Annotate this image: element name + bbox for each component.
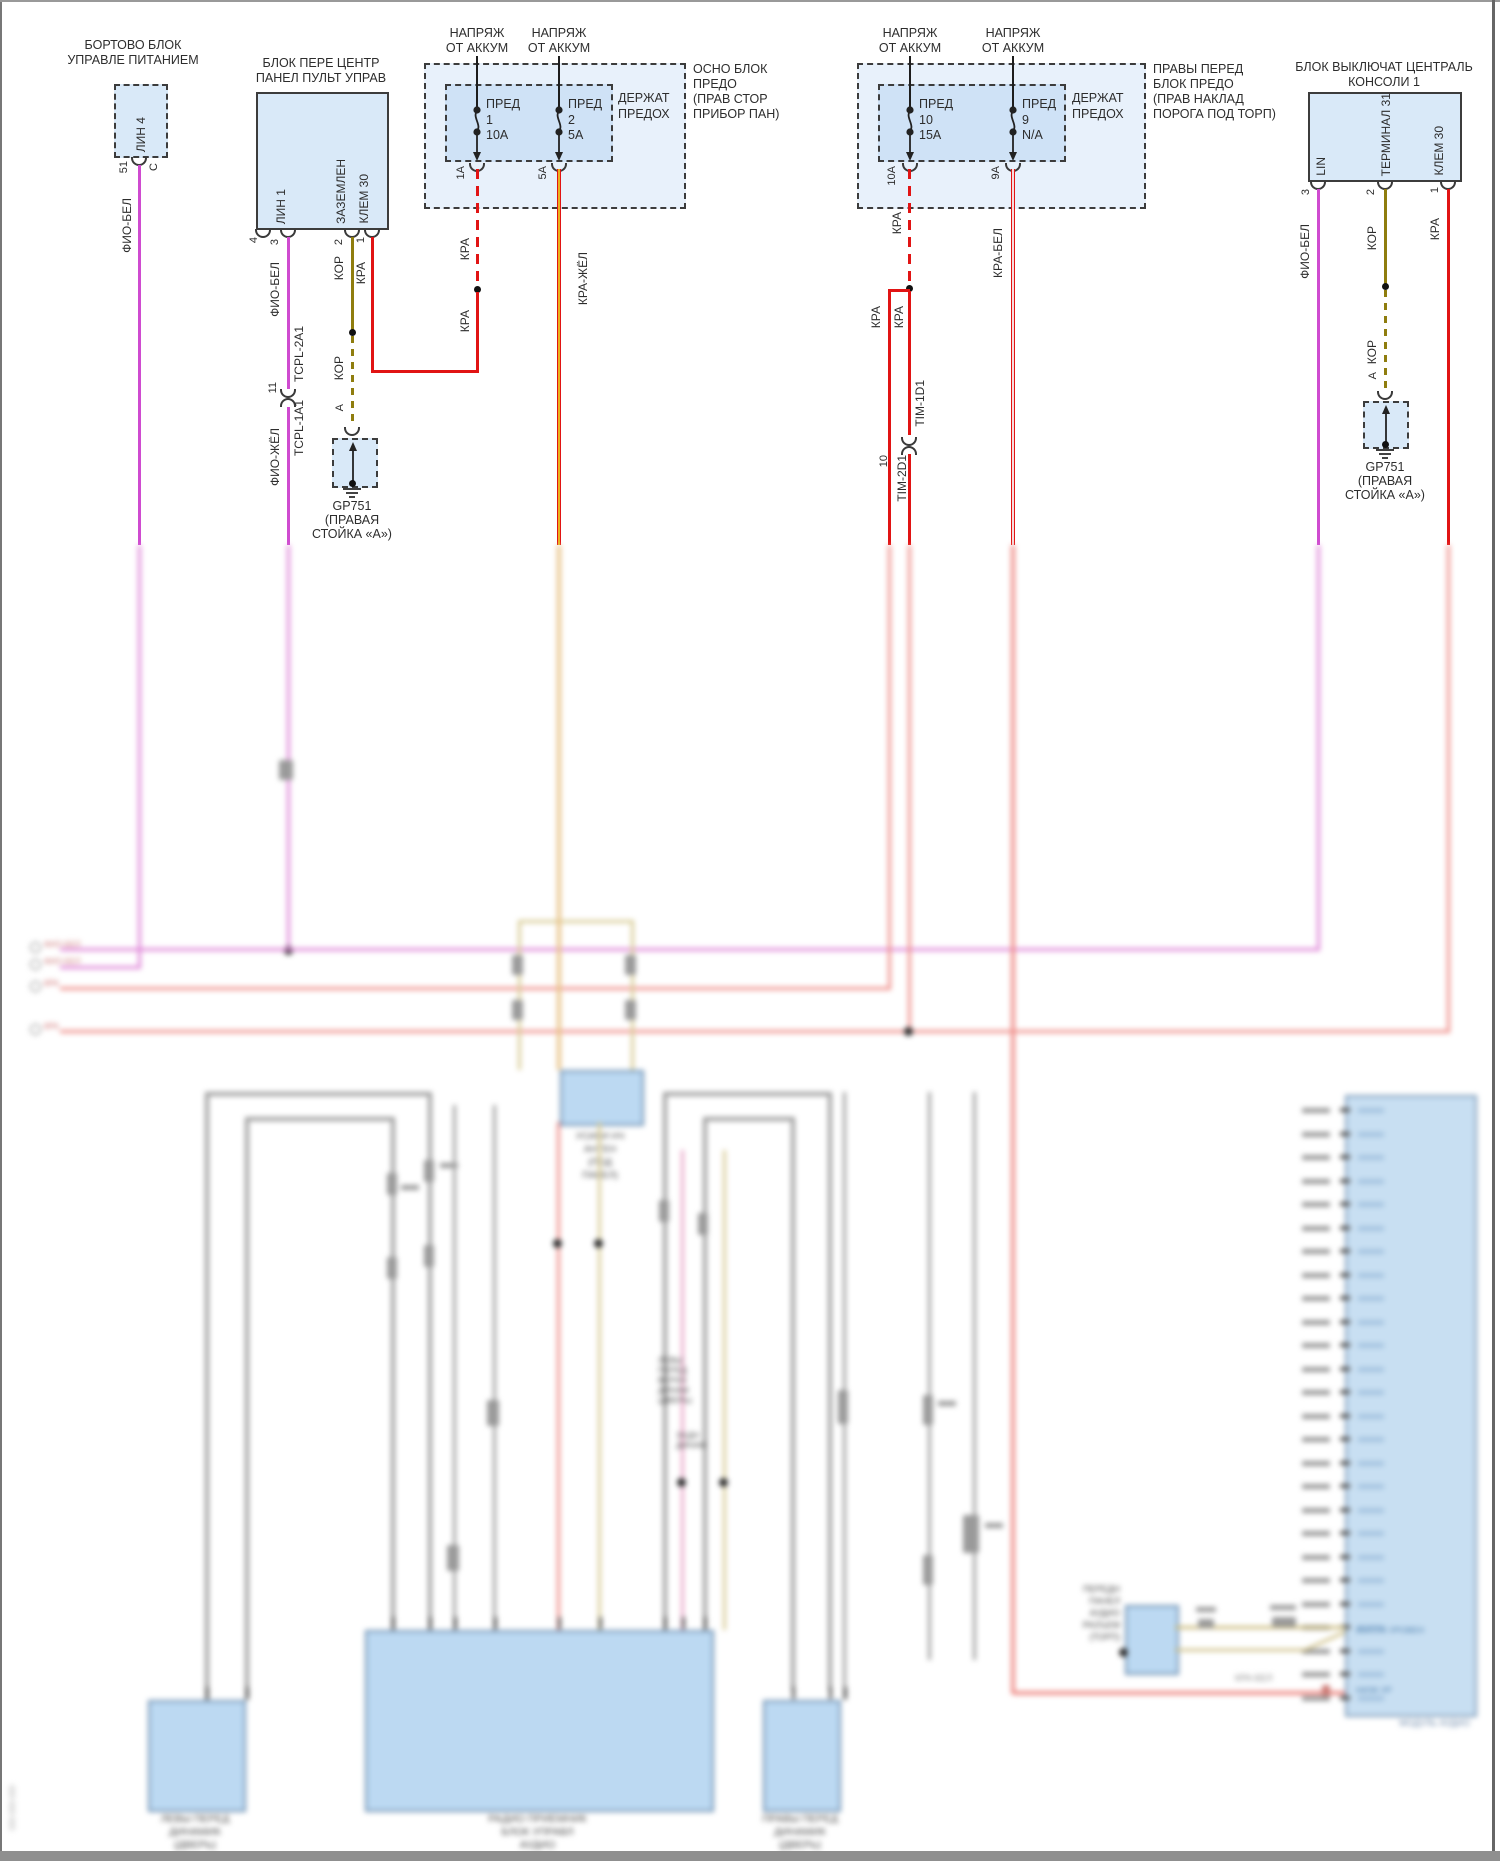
blur-wire-red-left: [888, 545, 891, 990]
speaker-label-2: ЗАДН ДИНАМ: [676, 1430, 707, 1450]
module-pin-tick: [1340, 1437, 1350, 1441]
block3-pin3: 3: [1300, 189, 1312, 195]
loop-left-outer-l: [205, 1092, 209, 1700]
module-pin-tick: [1340, 1508, 1350, 1512]
radio-box-label: РАДИО ПРИЕМНИК БЛОК УПРАВЛ АУДИО: [455, 1813, 620, 1852]
frame-left: [0, 0, 2, 1861]
gray-wire-2: [493, 1105, 496, 1630]
fusebox1-holder-label: ДЕРЖАТ ПРЕДОХ: [618, 90, 670, 122]
offpage-ref-3: [30, 981, 41, 992]
conn-a-letter-right: А: [1367, 372, 1379, 379]
module-pin-ref-bar: [1302, 1555, 1330, 1560]
blur-stub-2: [60, 966, 141, 969]
block2-pin-klem: КЛЕМ 30: [357, 174, 371, 224]
frame-top: [0, 0, 1500, 2]
wire-fio-zhel: [287, 407, 290, 545]
blur-dot-c2: [594, 1239, 603, 1248]
fusebox1-side-label: ОСНО БЛОК ПРЕДО (ПРАВ СТОР ПРИБОР ПАН): [693, 62, 779, 122]
module-pin-inner-bar: [1358, 1132, 1384, 1137]
module-pin-inner-bar: [1358, 1202, 1384, 1207]
module-pin-inner-bar: [1358, 1484, 1384, 1489]
module-pin-ref-bar: [1302, 1437, 1330, 1442]
module-pin-tick: [1340, 1343, 1350, 1347]
blur-inline-connector: [279, 760, 293, 780]
fuse10-out-label: 10A: [886, 166, 898, 186]
wire-kra-1a-solid: [476, 292, 479, 373]
doc-number: 000-000-000: [8, 1785, 17, 1830]
conn-blob-16: [963, 1515, 979, 1553]
wire-kra-horizontal: [371, 370, 479, 373]
gray-wire-5: [973, 1092, 976, 1660]
frame-right: [1492, 0, 1495, 1861]
conn-blob-18: [1272, 1617, 1296, 1627]
block2-pin3: 3: [269, 239, 281, 245]
module-pin-ref-bar: [1302, 1414, 1330, 1419]
module-pin-inner-bar: [1358, 1179, 1384, 1184]
conn-blob-10: [625, 1000, 636, 1020]
module-pin-inner-bar: [1358, 1437, 1384, 1442]
conn-blob-12: [698, 1213, 708, 1235]
blur-wire-cream-r: [723, 1150, 726, 1630]
tiny-label-bar-6: [1270, 1605, 1296, 1610]
module-pin-tick: [1340, 1367, 1350, 1371]
module-pin-ref-bar: [1302, 1367, 1330, 1372]
tiny-label-bar-2: [401, 1185, 419, 1190]
module-pin-ref-bar: [1302, 1602, 1330, 1607]
wire-kra-1a-dashed: [476, 169, 479, 287]
module-pin-ref-bar: [1302, 1296, 1330, 1301]
block1-pin-number: 51: [118, 161, 130, 173]
wire-fio-bel-1: [138, 165, 141, 545]
blur-bus-red-2: [60, 1030, 1450, 1033]
wire-kor-3-solid: [1384, 189, 1387, 285]
wire-fio-bel-2: [287, 237, 290, 389]
module-pin-inner-bar: [1358, 1273, 1384, 1278]
module-pin-tick: [1340, 1320, 1350, 1324]
wire-label-fio-bel-2: ФИО-БЕЛ: [268, 262, 282, 317]
blur-dot-r1: [677, 1478, 686, 1487]
speaker-box-right: [763, 1700, 841, 1812]
module-pin-tick: [1340, 1696, 1350, 1700]
conn-a-arc: [344, 427, 360, 436]
module-pin-ref-bar: [1302, 1132, 1330, 1137]
wire-label-kra-10a: КРА: [890, 212, 904, 234]
stub-label-3: КРА: [44, 979, 59, 988]
module-pin-inner-bar: [1358, 1226, 1384, 1231]
module-pin-tick: [1340, 1390, 1350, 1394]
module-pin-tick: [1340, 1414, 1350, 1418]
fusebox2-feed1: НАПРЯЖ ОТ АККУМ: [860, 26, 960, 56]
wire-kra-branch-h: [888, 289, 910, 292]
wire-kor-dashed: [351, 336, 354, 422]
module-pin-ref-bar: [1302, 1179, 1330, 1184]
speaker-box-left-label: ЛЕВЫ ПЕРЕД ДИНАМИК (ДВЕРЬ): [125, 1813, 265, 1852]
wire-label-kra-solid: КРА: [458, 310, 472, 332]
conn-blob-11: [659, 1200, 669, 1222]
conn-a-letter: А: [334, 404, 346, 411]
module-pin-tick: [1340, 1179, 1350, 1183]
block2-box: ЛИН 1 ЗАЗЕМЛЕН КЛЕМ 30: [256, 92, 389, 230]
block2-pin-gnd: ЗАЗЕМЛЕН: [334, 159, 348, 224]
wire-label-kra-v1: КРА: [354, 262, 368, 284]
block2-pin4: 4: [248, 237, 260, 243]
wire-label-kor: КОР: [332, 256, 346, 280]
small-connector-box: [1125, 1605, 1179, 1675]
module-pin-ref-bar: [1302, 1484, 1330, 1489]
loop-center-top: [518, 920, 634, 923]
conn-blob-2: [424, 1245, 434, 1267]
wire-label-kor-2: КОР: [332, 356, 346, 380]
block3-title: БЛОК ВЫКЛЮЧАТ ЦЕНТРАЛЬ КОНСОЛИ 1: [1264, 60, 1500, 90]
wire-label-fio-bel-1: ФИО-БЕЛ: [120, 198, 134, 253]
block1-title: БОРТОВО БЛОК УПРАВЛЕ ПИТАНИЕМ: [53, 38, 213, 68]
module-pin-tick: [1340, 1202, 1350, 1206]
module-pin-ref-bar: [1302, 1672, 1330, 1677]
junction-dot-kor-3: [1382, 283, 1389, 290]
loop-left-inner-top: [245, 1117, 395, 1121]
fuse2-label: ПРЕД 2 5A: [568, 97, 602, 144]
module-pin-inner-bar: [1358, 1649, 1384, 1654]
module-pin-inner-bar: [1358, 1343, 1384, 1348]
wire-kra-10a-dashed: [908, 169, 911, 286]
conn-blob-7: [512, 955, 523, 975]
wire-label-fio-bel-3: ФИО-БЕЛ: [1298, 224, 1312, 279]
module-pin-inner-bar: [1358, 1390, 1384, 1395]
wire-kra-tim-lower: [908, 454, 911, 545]
tim-2d1-label: TIM-2D1: [895, 455, 909, 502]
module-pin-tick: [1340, 1296, 1350, 1300]
wire-kra-zhel: [557, 169, 561, 545]
block3-pin-klem30: КЛЕМ 30: [1432, 126, 1446, 176]
module-pin-tick: [1340, 1484, 1350, 1488]
ground-dot-right: [1382, 441, 1389, 448]
module-pin-tick: [1340, 1155, 1350, 1159]
conn-blob-1: [424, 1160, 434, 1182]
wire-kra-tim-upper: [908, 291, 911, 435]
speaker-box-right-label: ПРАВЫ ПЕРЕД ДИНАМИК (ДВЕРЬ): [735, 1813, 865, 1852]
loop-right-outer-top: [663, 1092, 832, 1096]
module-pin-inner-bar: [1358, 1367, 1384, 1372]
blur-wire-magenta-3: [1317, 545, 1320, 951]
ground-label-left: GP751 (ПРАВАЯ СТОЙКА «А»): [292, 499, 412, 541]
module-pin-inner-bar: [1358, 1414, 1384, 1419]
junction-dot-kor: [349, 329, 356, 336]
blur-dot-r2: [719, 1478, 728, 1487]
loop-left-outer-top: [205, 1092, 432, 1096]
fuse2-out-label: 5A: [537, 166, 549, 179]
module-pin-inner-bar: [1358, 1531, 1384, 1536]
conn-blob-5: [487, 1400, 499, 1426]
conn-blob-17: [1198, 1619, 1214, 1628]
blur-wire-red-right: [908, 545, 911, 1033]
module-pin-tick: [1340, 1531, 1350, 1535]
offpage-ref-4: [30, 1024, 41, 1035]
module-pin-label-1: ВЫСОК УРОВЕН: [1356, 1625, 1424, 1635]
loop-center-l: [518, 920, 521, 1070]
loop-right-inner-l: [703, 1117, 707, 1630]
block3-pin-lin: LIN: [1314, 157, 1328, 176]
module-pin-ref-bar: [1302, 1508, 1330, 1513]
blur-bus-red-1: [60, 987, 891, 990]
tcpl-connector-upper: [280, 389, 296, 398]
module-pin-ref-bar: [1302, 1461, 1330, 1466]
block1-box: ЛИН 4: [114, 84, 168, 158]
fuse9-symbol: [1005, 104, 1021, 164]
module-pin-tick: [1340, 1132, 1350, 1136]
blur-wire-orange: [557, 545, 561, 1070]
module-pin-inner-bar: [1358, 1155, 1384, 1160]
conn-blob-14: [923, 1395, 933, 1425]
blur-wire-red-far-right: [1447, 545, 1450, 1033]
block2-pin2: 2: [333, 239, 345, 245]
fuse9-label: ПРЕД 9 N/A: [1022, 97, 1056, 144]
fuse1-symbol: [469, 104, 485, 164]
module-pin-inner-bar: [1358, 1249, 1384, 1254]
fuse9-out-label: 9A: [990, 166, 1002, 179]
wire-kra-bel: [1011, 169, 1015, 545]
blur-wire-cream-c: [598, 1122, 601, 1630]
frame-bottom: [0, 1851, 1500, 1861]
conn-blob-3: [387, 1173, 397, 1195]
module-pin-inner-bar: [1358, 1508, 1384, 1513]
module-pin-inner-bar: [1358, 1696, 1384, 1701]
fuse10-symbol: [902, 104, 918, 164]
fuse1-label: ПРЕД 1 10A: [486, 97, 520, 144]
fusebox2-side-label: ПРАВЫ ПЕРЕД БЛОК ПРЕДО (ПРАВ НАКЛАД ПОРО…: [1153, 62, 1276, 122]
module-pin-ref-bar: [1302, 1249, 1330, 1254]
tiny-label-bar-4: [985, 1523, 1003, 1528]
tcpl-2a1-label: TCPL-2A1: [292, 326, 306, 382]
tcpl-pin-11: 11: [267, 382, 279, 393]
module-pin-inner-bar: [1358, 1296, 1384, 1301]
conn-blob-9: [625, 955, 636, 975]
ground-arrow-up-right: [1378, 403, 1394, 445]
tcpl-1a1-label: TCPL-1A1: [292, 400, 306, 456]
fuse2-symbol: [551, 104, 567, 164]
wire-label-fio-zhel: ФИО-ЖЁЛ: [268, 428, 282, 486]
module-pin-tick: [1340, 1555, 1350, 1559]
module-pin-ref-bar: [1302, 1273, 1330, 1278]
module-pin-tick: [1340, 1578, 1350, 1582]
wire-label-kor-3: КОР: [1365, 226, 1379, 250]
conn-blob-6: [447, 1545, 459, 1571]
module-pin-ref-bar: [1302, 1108, 1330, 1113]
wire-label-kra-dash: КРА: [458, 238, 472, 260]
conn-blob-8: [512, 1000, 523, 1020]
blurred-lower-section: ФИО-БЕЛ ФИО-БЕЛ КРА КРА УСИЛИ НЧ А: [0, 545, 1500, 1861]
wire-label-kra-3: КРА: [1428, 218, 1442, 240]
module-pin-inner-bar: [1358, 1555, 1384, 1560]
amp-box: [560, 1070, 644, 1126]
tan-wire-lower: [1175, 1630, 1347, 1656]
fuse10-label: ПРЕД 10 15A: [919, 97, 953, 144]
module-pin-tick: [1340, 1602, 1350, 1606]
block2-pin1: 1: [355, 237, 367, 243]
connector-label: ПЕРЕДН ПАНЕЛ АУДИО РАЗЪЕМ (ТОРП): [1040, 1583, 1120, 1643]
wire-fio-bel-3: [1317, 189, 1320, 545]
loop-right-inner-r: [791, 1117, 795, 1690]
wiring-diagram-page: БОРТОВО БЛОК УПРАВЛЕ ПИТАНИЕМ ЛИН 4 51 C…: [0, 0, 1500, 1861]
block2-title: БЛОК ПЕРЕ ЦЕНТР ПАНЕЛ ПУЛЬТ УПРАВ: [231, 56, 411, 86]
ground-dot-left: [349, 480, 356, 487]
module-pin-tick: [1340, 1672, 1350, 1676]
offpage-ref-2: [30, 959, 41, 970]
module-pin-ref-bar: [1302, 1696, 1330, 1701]
stub-label-2: ФИО-БЕЛ: [44, 957, 81, 966]
conn-blob-4: [387, 1257, 397, 1279]
module-pin-tick: [1340, 1108, 1350, 1112]
blur-wire-salmon-c: [557, 1122, 560, 1630]
fusebox2-holder-label: ДЕРЖАТ ПРЕДОХ: [1072, 90, 1124, 122]
blur-bus-magenta: [60, 948, 1320, 951]
ground-arrow-up: [345, 440, 361, 484]
speaker-label: ЛЕВЫ ПЕРЕД ВЕРХН ДИНАМ (ДВЕРЬ): [658, 1355, 692, 1405]
wire-label-kra-right: КРА: [892, 306, 906, 328]
module-pin-tick: [1340, 1273, 1350, 1277]
module-pin-inner-bar: [1358, 1320, 1384, 1325]
module-pin-ref-bar: [1302, 1578, 1330, 1583]
module-pin-ref-bar: [1302, 1202, 1330, 1207]
module-pin-ref-bar: [1302, 1390, 1330, 1395]
speaker-box-left: [148, 1700, 246, 1812]
module-pin-label-2: НИЗК УР: [1356, 1685, 1392, 1695]
block1-conn-letter: C: [148, 163, 160, 171]
block2-pin-lin: ЛИН 1: [274, 189, 288, 224]
loop-center-r: [631, 920, 634, 1070]
fusebox2-feed2: НАПРЯЖ ОТ АККУМ: [963, 26, 1063, 56]
wire-kor-3-dashed: [1384, 290, 1387, 388]
stub-label-4: КРА: [44, 1022, 59, 1031]
tiny-label-bar-3: [938, 1401, 956, 1406]
block3-pin2: 2: [1365, 189, 1377, 195]
tim-pin-10: 10: [878, 455, 890, 467]
conn-blob-15: [923, 1555, 933, 1585]
blur-wire-kra-bel: [1011, 545, 1015, 1694]
blur-kra-bel-label: КРА-БЕЛ: [1235, 1673, 1272, 1683]
fusebox1-feed2: НАПРЯЖ ОТ АККУМ: [509, 26, 609, 56]
conn-blob-13: [838, 1390, 848, 1424]
module-pin-ref-bar: [1302, 1320, 1330, 1325]
blur-dot-c1: [553, 1239, 562, 1248]
wire-kra-branch-v: [888, 289, 891, 545]
block3-pin-term31: ТЕРМИНАЛ 31: [1379, 93, 1393, 176]
module-pin-inner-bar: [1358, 1578, 1384, 1583]
wire-label-kra-bel: КРА-БЕЛ: [991, 228, 1005, 278]
loop-right-outer-r: [828, 1092, 832, 1690]
blur-wire-magenta-2: [287, 545, 290, 952]
module-pin-inner-bar: [1358, 1672, 1384, 1677]
fuse1-out-label: 1A: [455, 166, 467, 179]
wire-label-kra-left: КРА: [869, 306, 883, 328]
block3-pin1: 1: [1429, 187, 1441, 193]
blur-dot-connector: [1119, 1648, 1128, 1657]
wire-kor-solid: [351, 237, 354, 332]
module-pin-tick: [1340, 1461, 1350, 1465]
module-pin-tick: [1340, 1226, 1350, 1230]
module-pin-inner-bar: [1358, 1461, 1384, 1466]
module-pin-inner-bar: [1358, 1602, 1384, 1607]
blur-junction-dot-bus2: [904, 1027, 913, 1036]
tiny-label-bar-5: [1196, 1607, 1216, 1612]
module-box-label: МОДУЛЬ АУДИО: [1360, 1717, 1470, 1730]
conn-a-arc-right: [1377, 391, 1393, 400]
tall-box-ticks: [1296, 1095, 1406, 1713]
wire-label-kra-zhel: КРА-ЖЁЛ: [576, 252, 590, 305]
module-pin-inner-bar: [1358, 1108, 1384, 1113]
loop-right-inner-top: [703, 1117, 795, 1121]
wire-kra-3: [1447, 189, 1450, 545]
tim-connector-upper: [901, 437, 917, 446]
offpage-ref-1: [30, 942, 41, 953]
stub-label-1: ФИО-БЕЛ: [44, 940, 81, 949]
wire-label-kor-3b: КОР: [1365, 340, 1379, 364]
tim-1d1-label: TIM-1D1: [913, 380, 927, 427]
module-pin-ref-bar: [1302, 1226, 1330, 1231]
module-pin-ref-bar: [1302, 1531, 1330, 1536]
loop-left-inner-l: [245, 1117, 249, 1700]
ground-label-right: GP751 (ПРАВАЯ СТОЙКА «А»): [1325, 460, 1445, 502]
blur-wire-magenta-1: [138, 545, 141, 969]
block1-pin-label: ЛИН 4: [134, 117, 148, 152]
radio-box-center: [365, 1630, 714, 1812]
wire-kra-klem30: [371, 237, 374, 373]
module-pin-ref-bar: [1302, 1155, 1330, 1160]
module-pin-tick: [1340, 1249, 1350, 1253]
module-pin-ref-bar: [1302, 1343, 1330, 1348]
block3-box: LIN ТЕРМИНАЛ 31 КЛЕМ 30: [1308, 92, 1462, 182]
